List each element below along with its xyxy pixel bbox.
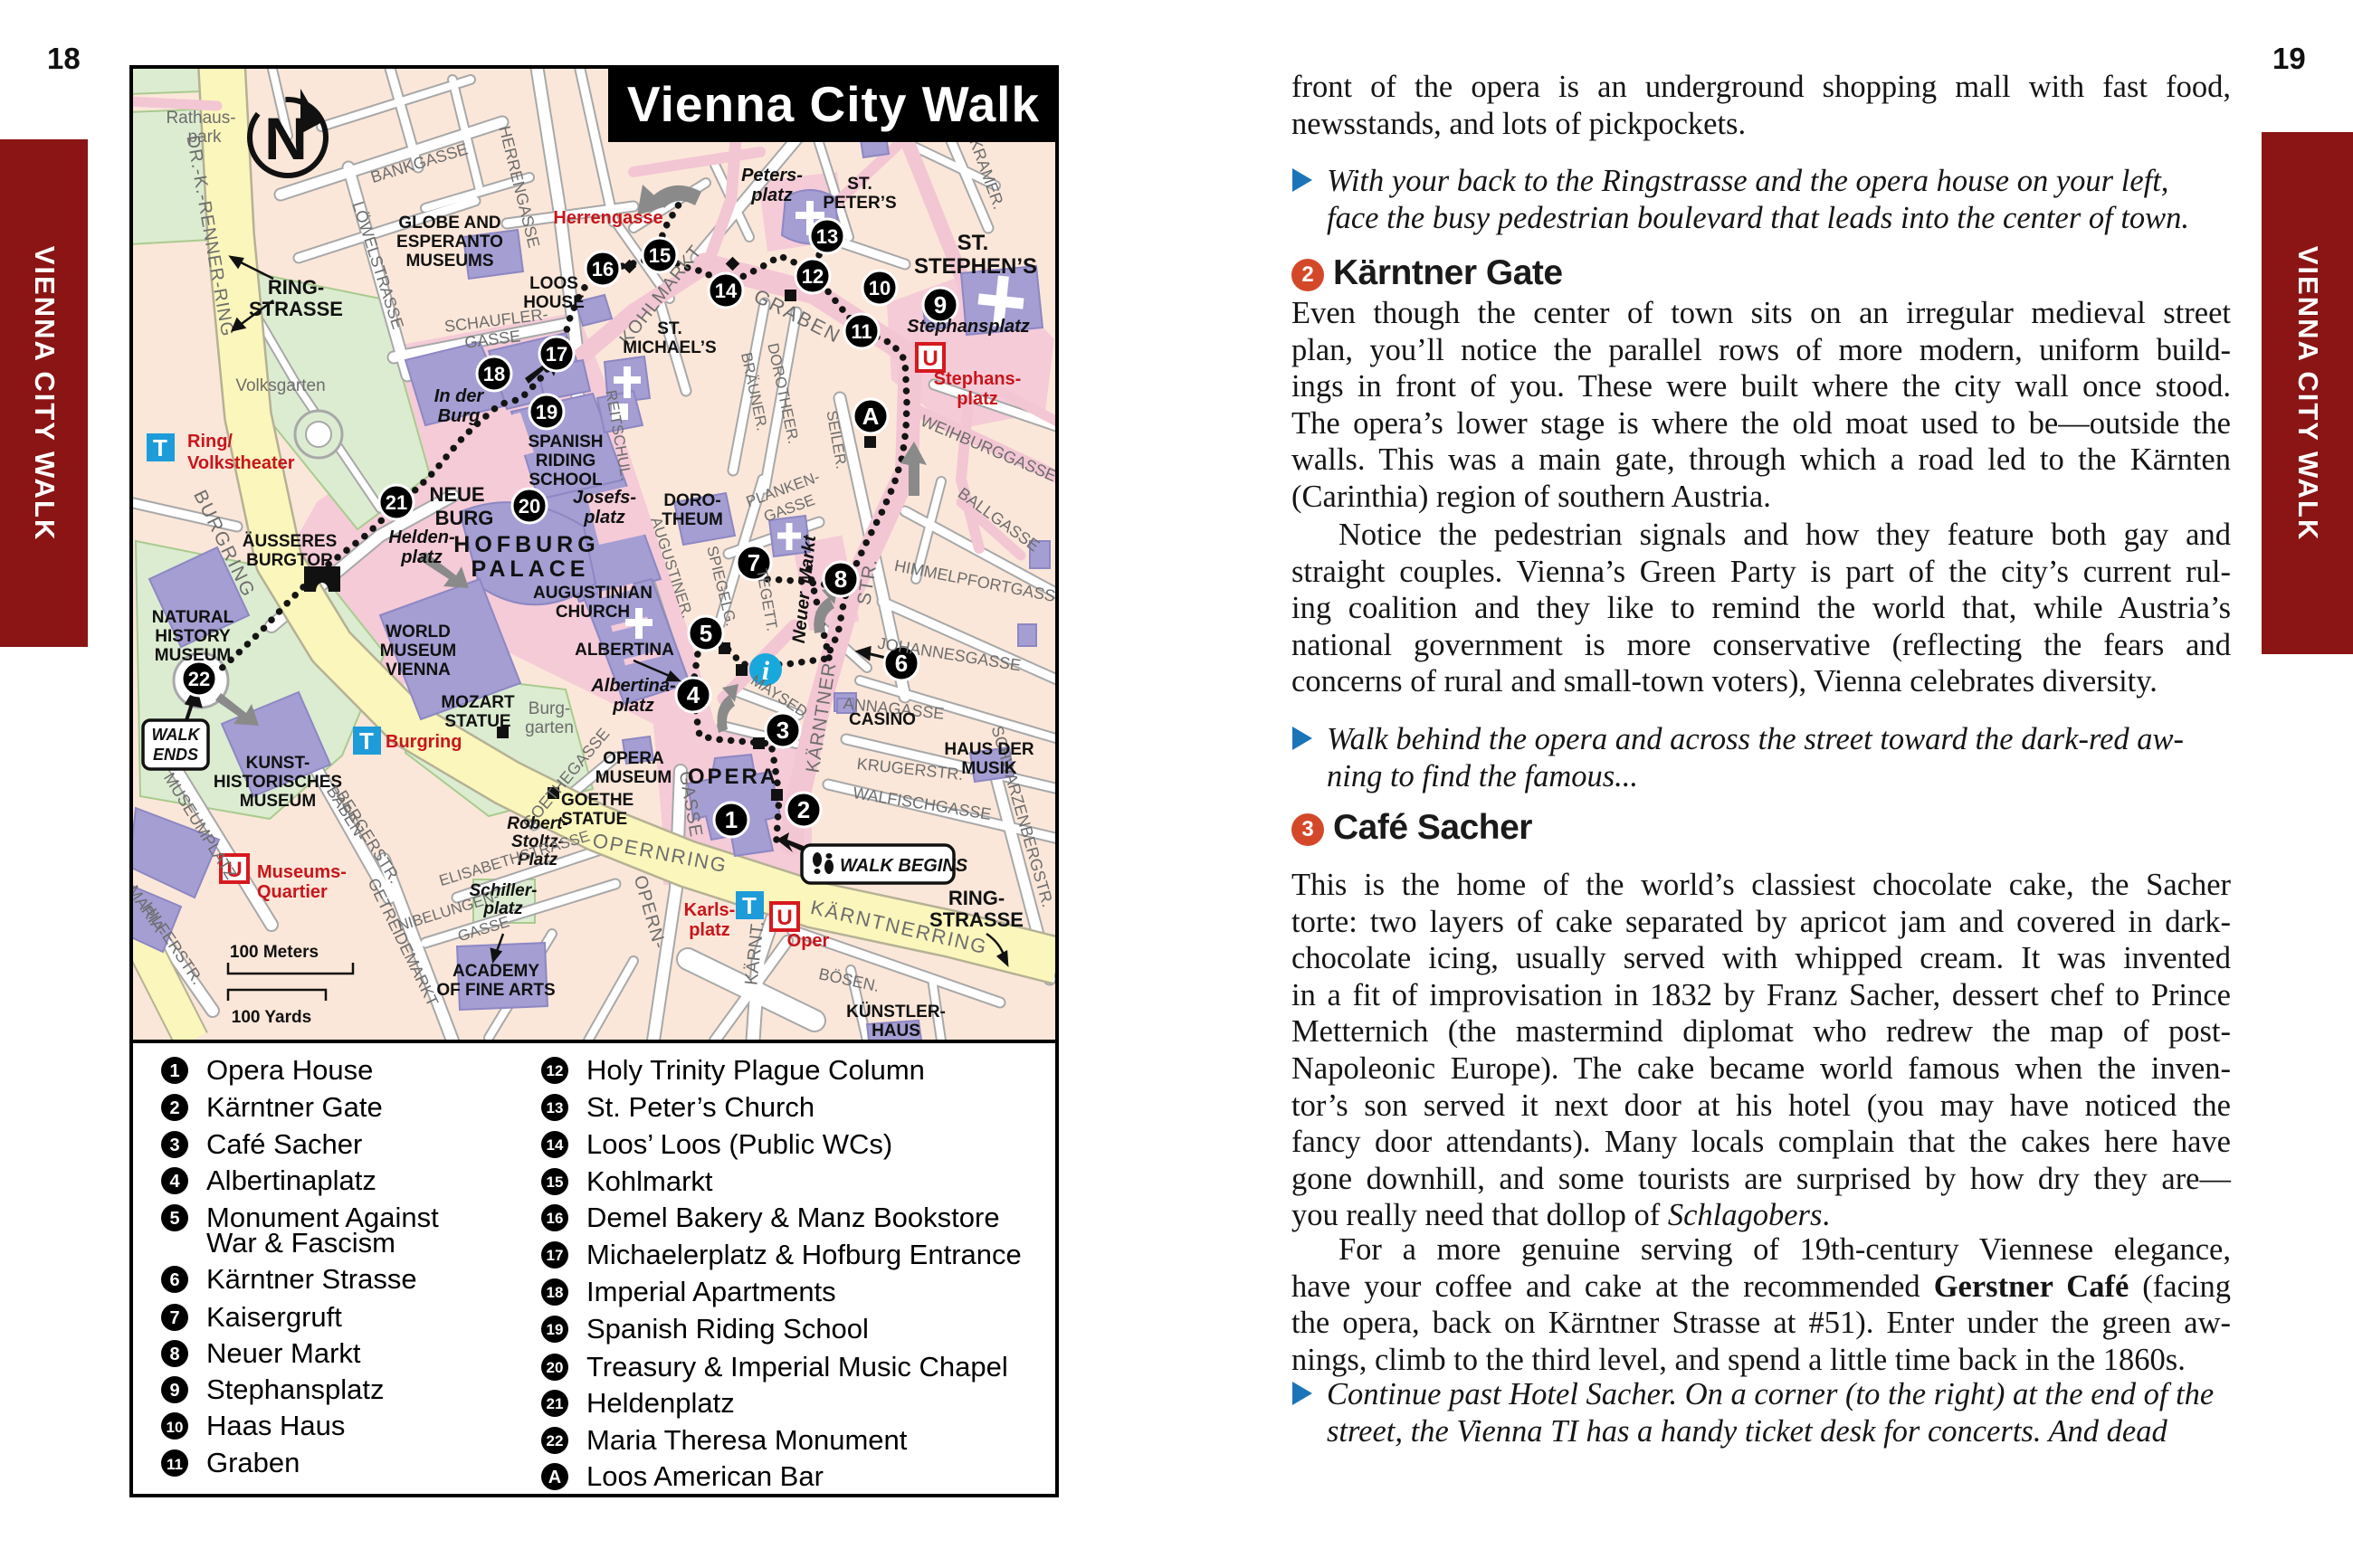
svg-text:RING-: RING- — [948, 887, 1005, 909]
svg-text:13: 13 — [816, 225, 838, 248]
svg-text:17: 17 — [547, 1247, 564, 1264]
svg-text:Ring/: Ring/ — [187, 432, 233, 451]
svg-text:Demel Bakery & Manz Bookstore: Demel Bakery & Manz Bookstore — [586, 1202, 1000, 1233]
svg-text:100 Meters: 100 Meters — [230, 943, 319, 962]
svg-text:15: 15 — [547, 1174, 564, 1191]
svg-text:Michaelerplatz & Hofburg Entra: Michaelerplatz & Hofburg Entrance — [586, 1239, 1022, 1270]
svg-text:Loos American Bar: Loos American Bar — [586, 1460, 824, 1492]
svg-text:21: 21 — [547, 1395, 564, 1412]
svg-text:ST.: ST. — [957, 231, 989, 255]
svg-text:Kaisergruft: Kaisergruft — [206, 1301, 342, 1333]
svg-text:STATUE: STATUE — [561, 810, 627, 829]
svg-text:Maria Theresa Monument: Maria Theresa Monument — [586, 1424, 908, 1456]
svg-text:OPERA: OPERA — [688, 765, 778, 789]
svg-text:7: 7 — [169, 1308, 179, 1328]
svg-text:Loos’ Loos (Public WCs): Loos’ Loos (Public WCs) — [586, 1128, 892, 1160]
svg-text:Robert-: Robert- — [507, 814, 568, 833]
svg-text:4: 4 — [169, 1172, 180, 1192]
svg-text:Rathaus-: Rathaus- — [166, 109, 235, 128]
svg-text:14: 14 — [547, 1136, 564, 1154]
svg-text:STATUE: STATUE — [444, 712, 510, 731]
svg-text:RIDING: RIDING — [536, 451, 596, 470]
svg-text:Kärntner Gate: Kärntner Gate — [206, 1091, 383, 1123]
svg-text:5: 5 — [169, 1209, 179, 1229]
svg-text:THEUM: THEUM — [662, 510, 723, 529]
svg-text:LOOS: LOOS — [529, 274, 578, 293]
svg-text:Peters-: Peters- — [741, 166, 803, 185]
svg-text:8: 8 — [169, 1345, 179, 1364]
svg-text:MUSEUM: MUSEUM — [380, 641, 456, 660]
svg-text:22: 22 — [188, 668, 210, 690]
svg-text:STRASSE: STRASSE — [929, 908, 1024, 931]
svg-text:Museums-: Museums- — [257, 862, 347, 882]
svg-text:Volkstheater: Volkstheater — [187, 453, 295, 473]
svg-text:A: A — [548, 1468, 561, 1487]
svg-text:8: 8 — [834, 565, 847, 593]
svg-text:2: 2 — [169, 1098, 179, 1118]
svg-text:11: 11 — [851, 320, 872, 343]
svg-text:Burg: Burg — [438, 406, 481, 426]
svg-text:AUGUSTINIAN: AUGUSTINIAN — [533, 584, 653, 603]
svg-text:NEUE: NEUE — [429, 483, 484, 506]
svg-text:MOZART: MOZART — [441, 693, 515, 712]
svg-text:MUSEUM: MUSEUM — [595, 768, 672, 787]
svg-text:HISTORY: HISTORY — [155, 627, 231, 646]
svg-text:1: 1 — [725, 806, 738, 833]
svg-text:Burgring: Burgring — [386, 732, 462, 752]
svg-text:platz: platz — [750, 185, 793, 205]
svg-text:KUNST-: KUNST- — [246, 754, 310, 773]
svg-text:14: 14 — [715, 280, 738, 302]
svg-text:WALK: WALK — [152, 726, 202, 744]
svg-text:CHURCH: CHURCH — [556, 603, 630, 622]
svg-text:MUSEUM: MUSEUM — [155, 646, 231, 665]
svg-text:ENDS: ENDS — [153, 746, 198, 764]
svg-text:KÜNSTLER-: KÜNSTLER- — [846, 1003, 946, 1022]
svg-text:18: 18 — [483, 363, 505, 385]
svg-text:PETER’S: PETER’S — [823, 194, 896, 213]
svg-text:Imperial Apartments: Imperial Apartments — [586, 1276, 836, 1307]
svg-text:Haas Haus: Haas Haus — [206, 1410, 345, 1441]
svg-text:3: 3 — [169, 1136, 179, 1155]
svg-text:12: 12 — [802, 265, 824, 288]
svg-text:10: 10 — [869, 277, 891, 299]
svg-text:Heldenplatz: Heldenplatz — [586, 1387, 735, 1419]
svg-text:PALACE: PALACE — [472, 556, 590, 582]
svg-text:OF FINE ARTS: OF FINE ARTS — [436, 981, 555, 1000]
svg-text:SPANISH: SPANISH — [528, 432, 603, 451]
svg-text:VIENNA: VIENNA — [386, 660, 451, 679]
svg-text:12: 12 — [547, 1062, 564, 1079]
svg-text:HAUS: HAUS — [872, 1022, 920, 1041]
svg-text:13: 13 — [547, 1099, 564, 1117]
svg-text:Stephansplatz: Stephansplatz — [206, 1373, 384, 1405]
svg-text:WALK BEGINS: WALK BEGINS — [840, 856, 968, 876]
svg-text:16: 16 — [592, 258, 614, 280]
svg-text:WORLD: WORLD — [386, 622, 451, 641]
svg-text:20: 20 — [547, 1359, 564, 1376]
svg-text:In der: In der — [434, 386, 485, 406]
svg-text:15: 15 — [649, 244, 671, 267]
svg-text:5: 5 — [700, 620, 712, 647]
svg-text:MICHAEL’S: MICHAEL’S — [623, 338, 716, 357]
svg-text:T: T — [742, 892, 757, 919]
svg-text:War & Fascism: War & Fascism — [206, 1227, 395, 1259]
svg-text:MUSEUMS: MUSEUMS — [405, 252, 493, 271]
svg-text:MUSIK: MUSIK — [961, 759, 1017, 778]
svg-text:3: 3 — [776, 717, 789, 744]
svg-text:Graben: Graben — [206, 1447, 300, 1478]
svg-text:19: 19 — [536, 401, 557, 423]
svg-text:ÄUSSERES: ÄUSSERES — [243, 532, 338, 551]
svg-text:Stephans-: Stephans- — [934, 369, 1022, 389]
svg-text:CASINO: CASINO — [849, 710, 916, 729]
svg-text:St. Peter’s Church: St. Peter’s Church — [586, 1091, 814, 1123]
svg-text:Kärntner Strasse: Kärntner Strasse — [206, 1263, 417, 1295]
svg-text:Albertina-: Albertina- — [590, 676, 676, 696]
svg-text:RING-: RING- — [268, 276, 324, 299]
svg-text:Helden-: Helden- — [388, 527, 455, 547]
svg-text:Volksgarten: Volksgarten — [235, 376, 325, 395]
svg-text:T: T — [153, 434, 167, 461]
svg-text:11: 11 — [167, 1456, 183, 1473]
svg-text:Stephansplatz: Stephansplatz — [907, 317, 1030, 337]
svg-text:platz: platz — [689, 920, 730, 940]
svg-text:DORO-: DORO- — [663, 491, 720, 510]
svg-text:1: 1 — [169, 1061, 179, 1081]
svg-text:Albertinaplatz: Albertinaplatz — [206, 1164, 376, 1196]
svg-text:4: 4 — [687, 681, 700, 708]
svg-text:platz: platz — [583, 508, 625, 527]
svg-text:Burg-: Burg- — [529, 699, 570, 718]
svg-text:NATURAL: NATURAL — [152, 608, 234, 627]
svg-text:21: 21 — [386, 491, 407, 514]
svg-text:GLOBE AND: GLOBE AND — [398, 214, 500, 233]
svg-text:SCHOOL: SCHOOL — [529, 470, 603, 489]
svg-text:10: 10 — [167, 1419, 184, 1436]
svg-text:HAUS DER: HAUS DER — [944, 740, 1034, 759]
svg-text:ALBERTINA: ALBERTINA — [575, 641, 674, 660]
svg-text:Oper: Oper — [787, 931, 830, 951]
svg-text:6: 6 — [169, 1270, 179, 1290]
svg-text:ST.: ST. — [657, 319, 681, 338]
svg-text:Opera House: Opera House — [206, 1054, 373, 1086]
svg-text:platz: platz — [957, 389, 998, 409]
svg-text:platz: platz — [612, 696, 654, 716]
svg-text:T: T — [359, 727, 374, 755]
svg-text:Quartier: Quartier — [257, 882, 328, 902]
svg-text:Kohlmarkt: Kohlmarkt — [586, 1165, 713, 1197]
svg-text:19: 19 — [547, 1321, 564, 1338]
svg-text:OPERA: OPERA — [603, 749, 664, 768]
svg-text:Karls-: Karls- — [684, 900, 736, 920]
svg-text:22: 22 — [547, 1432, 564, 1449]
svg-text:20: 20 — [519, 495, 540, 518]
svg-text:HOFBURG: HOFBURG — [453, 532, 599, 557]
svg-text:Herrengasse: Herrengasse — [553, 208, 662, 228]
svg-text:A: A — [862, 403, 880, 430]
svg-text:ACADEMY: ACADEMY — [452, 962, 539, 981]
svg-text:9: 9 — [934, 291, 947, 318]
svg-text:Treasury & Imperial Music Chap: Treasury & Imperial Music Chapel — [586, 1351, 1008, 1383]
svg-text:Josefs-: Josefs- — [573, 488, 636, 508]
svg-text:Holy Trinity Plague Column: Holy Trinity Plague Column — [586, 1054, 925, 1086]
svg-text:STEPHEN’S: STEPHEN’S — [914, 254, 1037, 279]
svg-text:MUSEUM: MUSEUM — [240, 792, 316, 811]
svg-text:Spanish Riding School: Spanish Riding School — [586, 1313, 869, 1345]
svg-text:Café Sacher: Café Sacher — [206, 1128, 362, 1160]
svg-text:17: 17 — [546, 343, 567, 366]
svg-text:HISTORISCHES: HISTORISCHES — [214, 773, 342, 792]
svg-text:ST.: ST. — [847, 175, 872, 194]
svg-text:BURG: BURG — [435, 507, 494, 529]
svg-text:U: U — [776, 906, 792, 930]
svg-text:Vienna City Walk: Vienna City Walk — [627, 76, 1040, 132]
svg-text:18: 18 — [547, 1284, 564, 1301]
svg-text:U: U — [922, 347, 938, 371]
svg-text:2: 2 — [797, 796, 810, 823]
svg-text:ESPERANTO: ESPERANTO — [396, 233, 503, 252]
svg-text:GOETHE: GOETHE — [561, 791, 633, 810]
svg-text:9: 9 — [169, 1381, 179, 1401]
svg-text:16: 16 — [547, 1210, 564, 1227]
svg-text:Neuer Markt: Neuer Markt — [206, 1337, 361, 1369]
svg-text:garten: garten — [525, 718, 574, 737]
svg-text:100 Yards: 100 Yards — [232, 1008, 311, 1027]
svg-text:platz: platz — [400, 547, 443, 567]
